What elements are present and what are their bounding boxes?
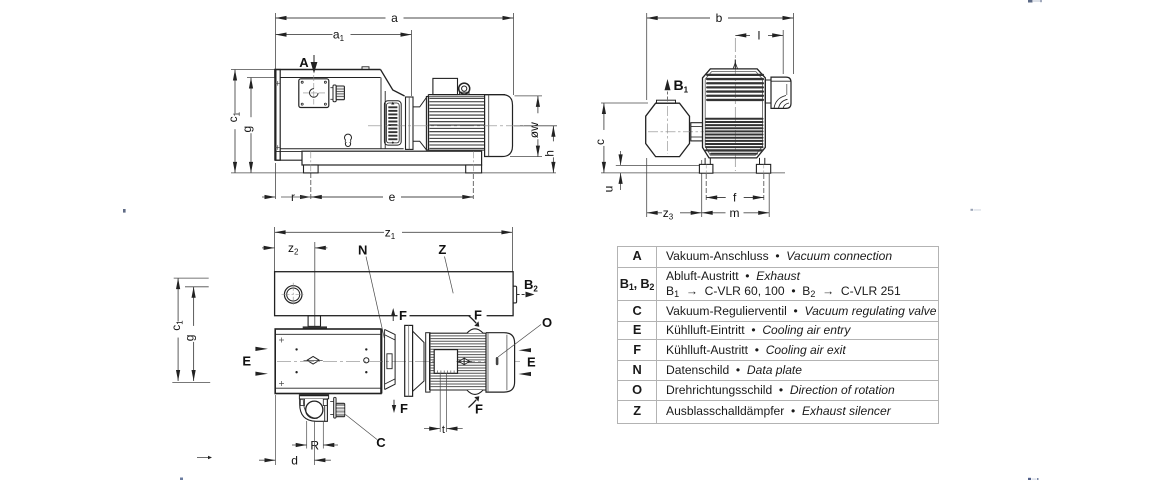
svg-text:b: b [716, 11, 723, 25]
svg-text:F: F [399, 308, 407, 323]
svg-text:E: E [527, 355, 536, 370]
svg-text:F: F [474, 308, 482, 323]
svg-text:Z: Z [438, 242, 446, 257]
svg-text:l: l [758, 28, 761, 42]
svg-text:F: F [475, 402, 483, 417]
svg-text:E: E [242, 354, 251, 369]
svg-text:c: c [593, 139, 607, 145]
svg-text:g: g [183, 335, 197, 342]
svg-text:e: e [389, 190, 396, 204]
svg-text:h: h [542, 150, 556, 157]
svg-text:R: R [310, 439, 319, 453]
svg-text:N: N [358, 243, 367, 258]
svg-text:C: C [376, 435, 386, 450]
svg-text:A: A [299, 55, 309, 70]
svg-text:d: d [291, 454, 298, 468]
svg-text:m: m [730, 206, 740, 220]
svg-text:O: O [542, 315, 552, 330]
svg-text:F: F [400, 401, 408, 416]
svg-text:g: g [240, 126, 254, 133]
svg-text:u: u [602, 186, 616, 193]
svg-text:t: t [442, 424, 445, 436]
svg-text:øw: øw [527, 122, 541, 138]
svg-text:a: a [391, 11, 398, 25]
